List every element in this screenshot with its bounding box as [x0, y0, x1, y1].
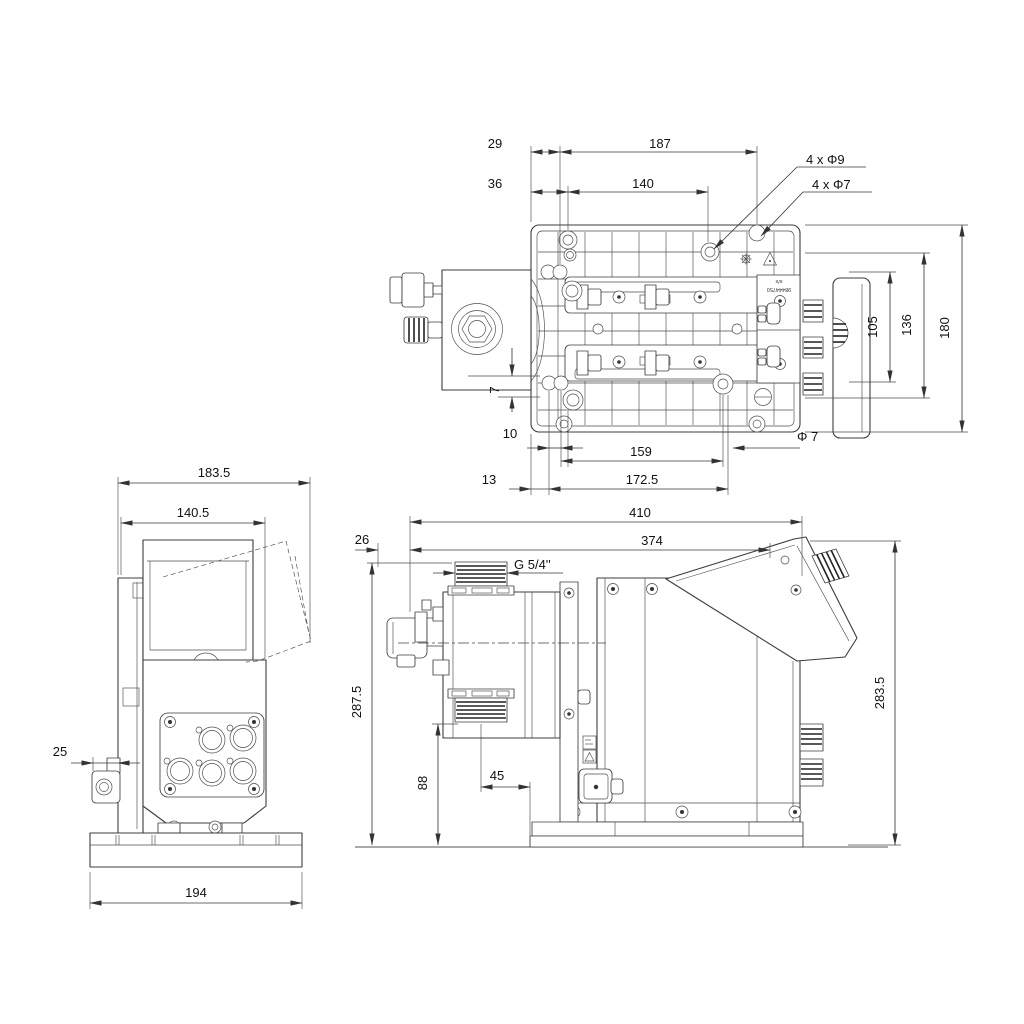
control-panel-top — [803, 278, 870, 438]
marking-xx: x/x — [775, 278, 782, 284]
plate-center-hole-right — [732, 324, 742, 334]
cable-gland-top — [390, 273, 442, 343]
control-cover-front — [143, 540, 253, 660]
side-view — [355, 537, 888, 847]
technical-drawing-canvas: x/x 98444750 — [0, 0, 1024, 1024]
dim-13: 13 — [482, 472, 496, 487]
marking-part-number: 98444750 — [767, 286, 791, 292]
dim-159: 159 — [630, 444, 652, 459]
label-thread: G 5/4'' — [514, 557, 551, 572]
dim-194: 194 — [185, 885, 207, 900]
drawing-page: x/x 98444750 — [0, 0, 1024, 1024]
clamp-rail-bottom — [565, 345, 790, 381]
dim-140: 140 — [632, 176, 654, 191]
dim-88: 88 — [415, 776, 430, 790]
dim-45: 45 — [490, 768, 504, 783]
label-phi7-hole: Φ 7 — [797, 429, 818, 444]
warning-label — [583, 736, 596, 763]
dim-7: 7 — [487, 386, 502, 393]
base-plate-side — [530, 822, 803, 847]
dim-10: 10 — [503, 426, 517, 441]
suction-connection-thread — [448, 562, 514, 595]
dim-183-5: 183.5 — [198, 465, 231, 480]
dim-136: 136 — [899, 314, 914, 336]
label-4xphi7: 4 x Φ7 — [812, 177, 851, 192]
wall-bracket — [92, 758, 120, 803]
molded-gear-icon — [741, 254, 752, 265]
dim-283-5: 283.5 — [872, 677, 887, 710]
plate-right-block: x/x 98444750 — [757, 275, 800, 383]
dim-29: 29 — [488, 136, 502, 151]
dim-140-5: 140.5 — [177, 505, 210, 520]
dim-187: 187 — [649, 136, 671, 151]
dim-410: 410 — [629, 505, 651, 520]
top-view: x/x 98444750 — [390, 225, 870, 438]
pump-head-top — [442, 270, 531, 390]
dim-180: 180 — [937, 317, 952, 339]
discharge-connection-thread — [448, 689, 514, 722]
cable-gland-side — [387, 600, 443, 667]
dim-26: 26 — [355, 532, 369, 547]
clamp-rail-top — [565, 277, 790, 313]
dim-25: 25 — [53, 744, 67, 759]
dim-172-5: 172.5 — [626, 472, 659, 487]
connector-panel — [160, 713, 264, 797]
dim-36: 36 — [488, 176, 502, 191]
front-view — [90, 540, 311, 867]
label-4xphi9: 4 x Φ9 — [806, 152, 845, 167]
side-knobs — [800, 724, 823, 786]
plate-center-hole-left — [593, 324, 603, 334]
panel-vent-hole — [781, 556, 789, 564]
dim-105: 105 — [865, 316, 880, 338]
dim-374: 374 — [641, 533, 663, 548]
body-screw-right — [209, 821, 221, 833]
dim-287-5: 287.5 — [349, 686, 364, 719]
